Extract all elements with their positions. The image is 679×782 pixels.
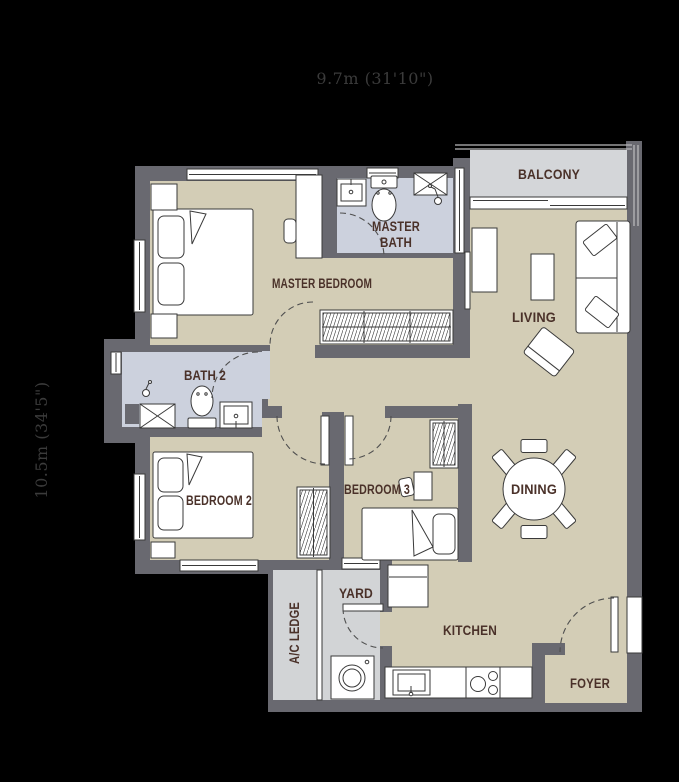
label-foyer: FOYER: [570, 676, 610, 691]
window-mbath-right: [455, 168, 464, 253]
nightstand-icon: [151, 184, 177, 210]
label-master-bedroom: MASTER BEDROOM: [272, 276, 372, 291]
coffee-table-icon: [531, 254, 554, 300]
door-leaf-entrance: [611, 597, 618, 652]
bed-icon-bedroom3: [362, 508, 458, 560]
floor-plan-image: BALCONY LIVING MASTER BATH MASTER BEDROO…: [0, 0, 679, 782]
pillow-icon: [433, 514, 455, 554]
wall-dining-left: [458, 404, 472, 562]
label-ac-ledge: A/C LEDGE: [287, 602, 302, 664]
ac-ledge-divider: [317, 570, 322, 700]
wardrobe-icon-master: [320, 310, 453, 344]
wardrobe-icon-bedroom3: [430, 420, 458, 468]
wall-bath2-shower-stub: [125, 404, 139, 424]
label-bedroom3: BEDROOM 3: [344, 482, 410, 497]
sofa-icon: [576, 221, 630, 333]
door-leaf-bedroom2: [321, 416, 329, 465]
floor-yard-door-opening: [378, 608, 392, 648]
floor-corridor: [268, 358, 465, 412]
floor-bath2-door-opening: [262, 351, 270, 399]
dresser-icon: [296, 175, 322, 258]
label-living: LIVING: [512, 310, 556, 325]
floor-master-bedroom-door-opening: [270, 345, 315, 358]
window-bedroom2-bottom: [180, 560, 258, 571]
sink-icon-bath2: [220, 402, 252, 428]
sliding-door-icon: [470, 197, 627, 209]
stool-icon: [284, 219, 296, 243]
sink-icon-master-bath: [337, 179, 366, 206]
washing-machine-icon: [331, 656, 374, 699]
desk-icon: [414, 472, 432, 500]
pillow-icon: [158, 263, 184, 305]
label-master-bath-1: MASTER: [372, 219, 420, 234]
tv-console-icon: [472, 228, 497, 292]
door-leaf-bedroom3: [345, 416, 353, 465]
wardrobe-icon-bedroom2: [297, 487, 330, 558]
label-master-bath-2: BATH: [380, 235, 412, 250]
chair-icon: [521, 526, 547, 539]
label-dining: DINING: [511, 482, 557, 497]
fridge-icon: [388, 565, 428, 607]
wall-foyer-left: [532, 643, 545, 712]
floor-plan-page: BALCONY LIVING MASTER BATH MASTER BEDROO…: [0, 0, 679, 782]
window-mbed-left: [134, 240, 145, 312]
label-yard: YARD: [339, 586, 373, 601]
pillow-icon: [158, 216, 184, 258]
label-kitchen: KITCHEN: [443, 623, 497, 638]
window-bedroom2-left: [134, 474, 145, 540]
wall-stub: [262, 406, 282, 418]
label-width-dimension: 9.7m (31'10"): [316, 69, 433, 88]
tv-icon: [465, 252, 470, 309]
door-leaf-yard: [343, 604, 383, 611]
floor-corridor-opening: [453, 358, 470, 404]
label-height-dimension: 10.5m (34'5"): [32, 381, 51, 498]
nightstand-icon: [151, 542, 175, 558]
pillow-icon: [158, 496, 183, 530]
window-bath2-left: [111, 352, 121, 374]
label-bath2: BATH 2: [184, 368, 226, 383]
label-balcony: BALCONY: [518, 167, 580, 182]
stove-icon: [466, 667, 500, 698]
nightstand-icon: [151, 314, 177, 338]
kitchen-sink-icon: [393, 670, 430, 696]
toilet-icon-master-bath: [371, 176, 397, 221]
entrance-opening: [627, 597, 642, 653]
bed-icon-master: [153, 209, 253, 315]
chair-icon: [521, 440, 547, 453]
label-bedroom2: BEDROOM 2: [186, 493, 252, 508]
pillow-icon: [158, 458, 183, 492]
